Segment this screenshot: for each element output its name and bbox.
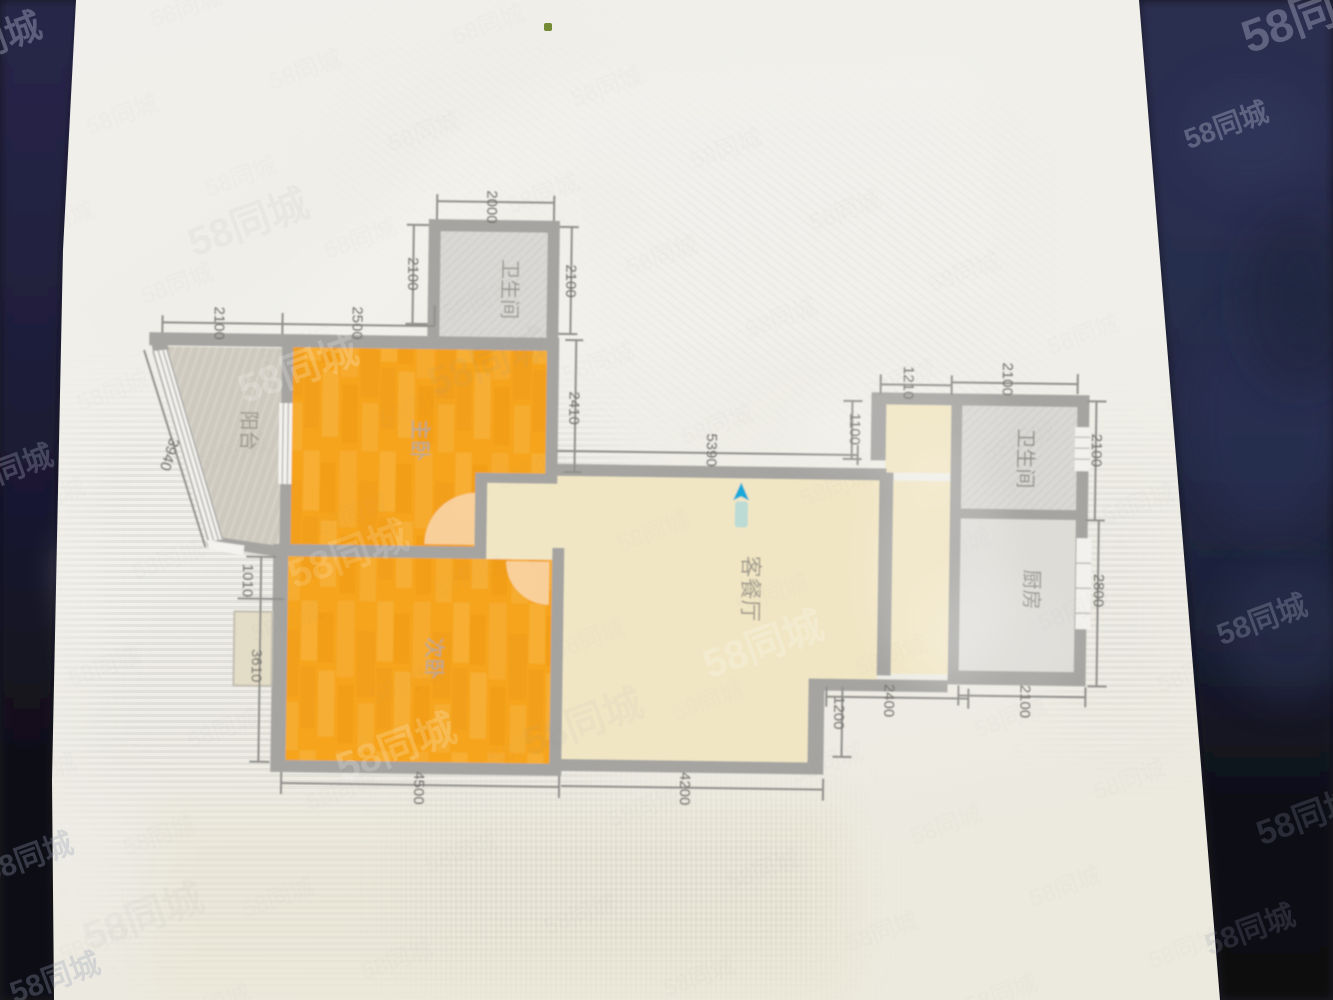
svg-text:2100: 2100 xyxy=(562,264,579,298)
svg-text:1010: 1010 xyxy=(239,564,256,598)
svg-text:2400: 2400 xyxy=(880,684,897,718)
svg-text:2100: 2100 xyxy=(404,257,421,291)
svg-text:2410: 2410 xyxy=(565,391,582,425)
svg-text:2000: 2000 xyxy=(483,190,500,224)
svg-text:2100: 2100 xyxy=(999,362,1016,396)
svg-text:4500: 4500 xyxy=(410,771,427,805)
svg-text:1200: 1200 xyxy=(830,696,847,730)
svg-text:3610: 3610 xyxy=(247,649,264,683)
svg-text:主卧: 主卧 xyxy=(408,419,432,461)
svg-text:2100: 2100 xyxy=(210,306,227,340)
svg-text:2100: 2100 xyxy=(1088,434,1105,468)
